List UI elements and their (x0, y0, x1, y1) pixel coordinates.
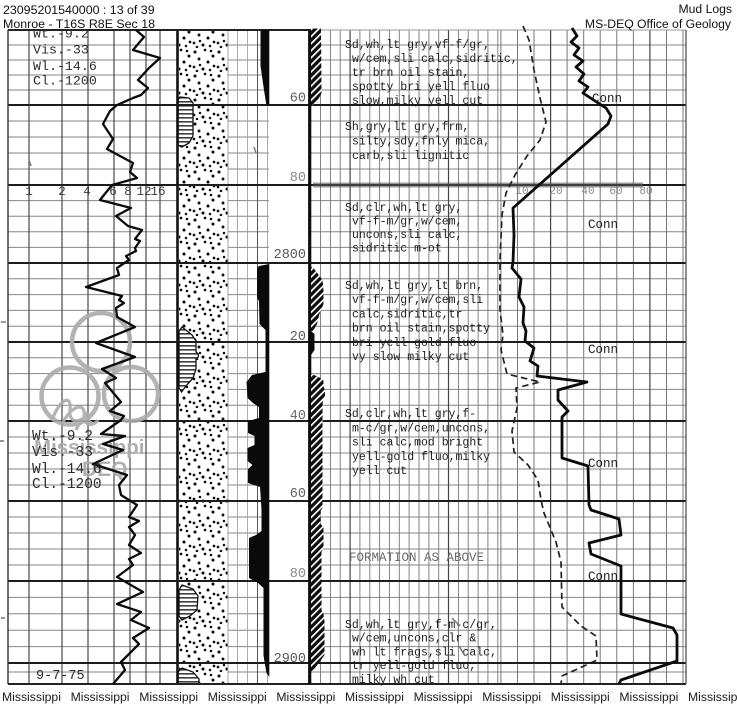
svg-text:1: 1 (25, 185, 33, 199)
svg-text:8: 8 (124, 185, 132, 199)
svg-text:Conn: Conn (588, 457, 618, 471)
svg-text:calc,sidritic,tr: calc,sidritic,tr (352, 308, 462, 321)
svg-text:Mississippi: Mississippi (2, 690, 61, 704)
svg-text:16: 16 (150, 185, 165, 199)
svg-text:slow,milky yell cut: slow,milky yell cut (352, 95, 483, 108)
svg-text:Mississippi: Mississippi (414, 690, 473, 704)
svg-text:10: 10 (515, 186, 528, 198)
svg-text:20: 20 (290, 330, 306, 345)
svg-text:Mississippi: Mississippi (619, 690, 678, 704)
svg-text:9-7-75: 9-7-75 (36, 669, 85, 684)
svg-text:Mississippi: Mississippi (208, 690, 267, 704)
svg-text:40: 40 (290, 409, 306, 424)
svg-text:tr yell-gold fluo,: tr yell-gold fluo, (352, 660, 476, 673)
svg-text:Sd,clr,wh,lt gry,: Sd,clr,wh,lt gry, (345, 202, 462, 215)
svg-text:carb,sli lignitic: carb,sli lignitic (352, 150, 469, 163)
svg-text:m-c/gr,w/cem,uncons,: m-c/gr,w/cem,uncons, (352, 422, 490, 435)
svg-text:Conn: Conn (588, 343, 618, 357)
svg-text:vf-f-m/gr,w/cem,sli: vf-f-m/gr,w/cem,sli (352, 294, 483, 307)
svg-text:Mud Logs: Mud Logs (678, 2, 732, 16)
svg-text:bri yell gold fluo: bri yell gold fluo (352, 337, 476, 350)
svg-text:Mississippi: Mississippi (482, 690, 541, 704)
svg-text:Vis.-33: Vis.-33 (32, 445, 93, 461)
svg-text:Mississippi: Mississippi (276, 690, 335, 704)
svg-text:80: 80 (290, 171, 306, 186)
svg-text:sidritic m-ot: sidritic m-ot (352, 243, 442, 256)
svg-text:sli calc,mod bright: sli calc,mod bright (352, 437, 483, 450)
svg-text:MS-DEQ Office of Geology: MS-DEQ Office of Geology (585, 17, 732, 31)
svg-text:Cl.-1200: Cl.-1200 (33, 74, 97, 89)
svg-text:Wl.-14.6: Wl.-14.6 (32, 462, 102, 478)
svg-text:60: 60 (609, 186, 622, 198)
svg-text:uncons,sli calc,: uncons,sli calc, (352, 229, 462, 242)
svg-text:23095201540000 : 13 of 39: 23095201540000 : 13 of 39 (3, 3, 155, 17)
svg-text:Conn: Conn (588, 570, 618, 584)
svg-text:Sh,gry,lt gry,frm,: Sh,gry,lt gry,frm, (345, 121, 469, 134)
svg-text:Cl.-1200: Cl.-1200 (32, 477, 102, 493)
svg-text:80: 80 (639, 186, 652, 198)
svg-text:silty,sdy,fnly mica,: silty,sdy,fnly mica, (352, 136, 490, 149)
svg-text:tr brn oil stain,: tr brn oil stain, (352, 67, 469, 80)
svg-text:80: 80 (290, 567, 306, 582)
svg-text:40: 40 (581, 186, 594, 198)
svg-text:w/cem,sli calc,sidritic,: w/cem,sli calc,sidritic, (352, 53, 518, 66)
svg-text:60: 60 (290, 92, 306, 107)
svg-text:FORMATION AS ABOVE: FORMATION AS ABOVE (349, 551, 484, 565)
svg-text:yell-gold fluo,milky: yell-gold fluo,milky (352, 451, 490, 464)
svg-text:Mississippi: Mississippi (139, 690, 198, 704)
svg-text:Conn: Conn (592, 92, 622, 106)
svg-text:2800: 2800 (274, 248, 306, 263)
svg-text:4: 4 (83, 185, 91, 199)
svg-text:60: 60 (290, 487, 306, 502)
svg-text:spotty bri yell fluo: spotty bri yell fluo (352, 81, 490, 94)
svg-text:wh lt frags,sli calc,: wh lt frags,sli calc, (352, 646, 497, 659)
svg-text:Sd,wh,lt gry,f-m-c/gr,: Sd,wh,lt gry,f-m-c/gr, (345, 619, 497, 632)
svg-text:Mississippi: Mississippi (345, 690, 404, 704)
svg-text:brn oil stain,spotty: brn oil stain,spotty (352, 323, 490, 336)
svg-text:Sd,clr,wh,lt gry,f-: Sd,clr,wh,lt gry,f- (345, 408, 476, 421)
svg-text:Mississippi: Mississippi (551, 690, 610, 704)
svg-text:20: 20 (549, 186, 562, 198)
svg-text:2: 2 (58, 185, 66, 199)
svg-text:6: 6 (109, 185, 117, 199)
svg-text:vy slow milky cut: vy slow milky cut (352, 351, 469, 364)
svg-text:Conn: Conn (588, 218, 618, 232)
svg-text:2900: 2900 (274, 652, 306, 667)
svg-text:Vis.-33: Vis.-33 (33, 43, 89, 58)
svg-text:Sd,wh,lt gry,lt brn,: Sd,wh,lt gry,lt brn, (345, 280, 483, 293)
svg-text:Mississippi: Mississippi (71, 690, 130, 704)
svg-text:Wt.-9.2: Wt.-9.2 (33, 27, 89, 42)
svg-text:w/cem,uncons,clr &: w/cem,uncons,clr & (352, 633, 476, 646)
svg-text:Sd,wh,lt gry,vf-f/gr,: Sd,wh,lt gry,vf-f/gr, (345, 39, 490, 52)
svg-text:Mississippi: Mississippi (688, 690, 737, 704)
svg-text:Wl.-14.6: Wl.-14.6 (33, 59, 97, 74)
svg-text:milky wh cut: milky wh cut (352, 674, 435, 687)
svg-text:12: 12 (136, 185, 151, 199)
svg-text:yell cut: yell cut (352, 465, 407, 478)
svg-text:vf-f-m/gr,w/cem,: vf-f-m/gr,w/cem, (352, 216, 462, 229)
svg-text:Wt.-9.2: Wt.-9.2 (32, 429, 93, 445)
